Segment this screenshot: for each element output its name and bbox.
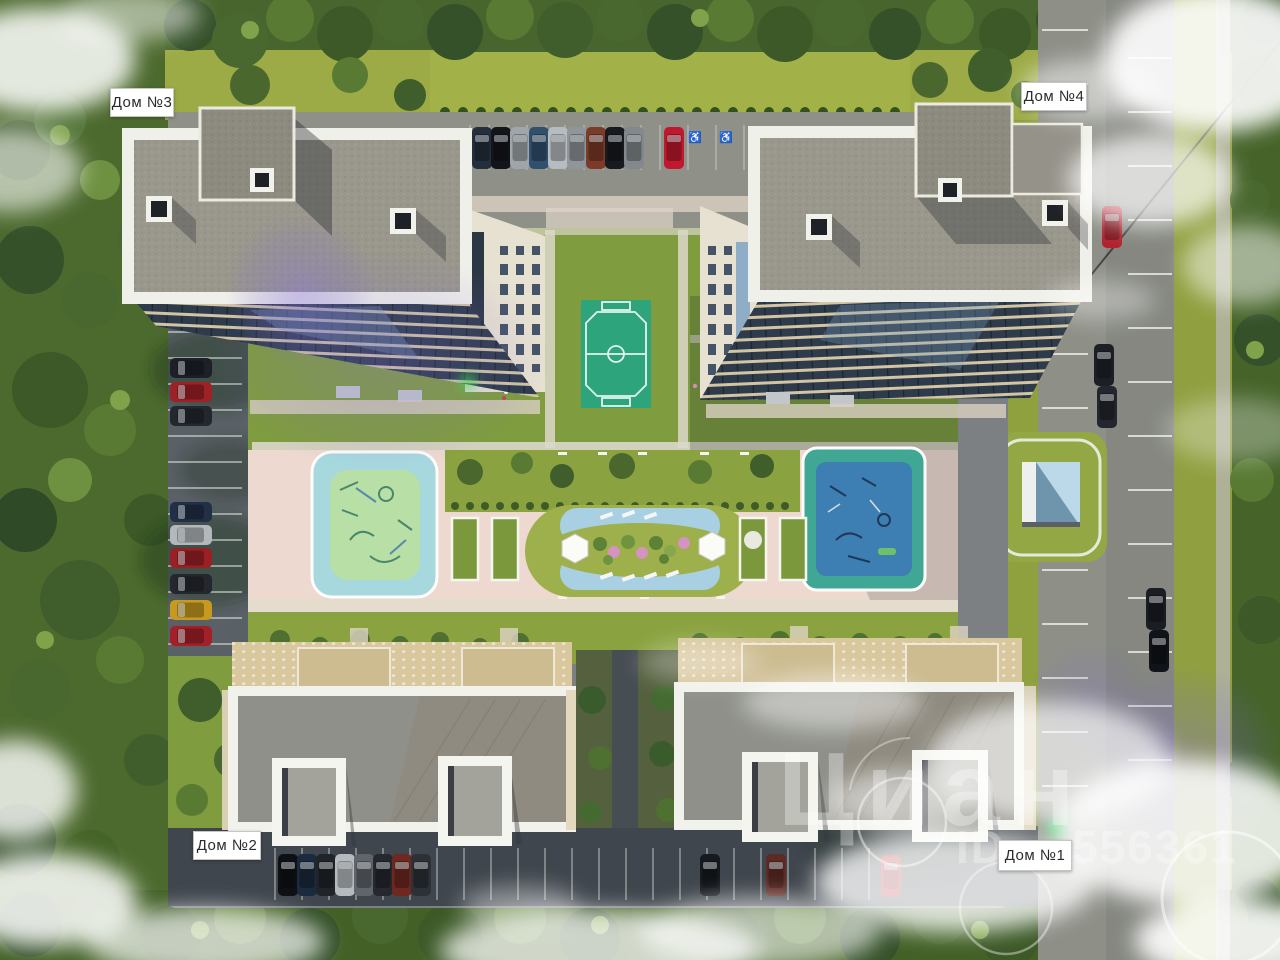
accessible-parking-icon: ♿ bbox=[719, 133, 733, 144]
playground-right bbox=[803, 448, 925, 590]
central-parterre bbox=[525, 505, 755, 597]
accessible-parking-icon: ♿ bbox=[688, 133, 702, 144]
playground-left bbox=[312, 452, 437, 597]
building-label-house4: Дом №4 bbox=[1021, 82, 1087, 111]
soccer-field bbox=[581, 300, 651, 408]
watermark-id-digits: 556361 bbox=[1072, 824, 1238, 870]
central-plaza bbox=[248, 448, 958, 615]
building-house2 bbox=[222, 642, 576, 846]
building-label-house2: Дом №2 bbox=[193, 831, 261, 860]
watermark-brand: Циан bbox=[778, 738, 1087, 842]
tower-house4 bbox=[700, 104, 1092, 418]
building-label-house1: Дом №1 bbox=[998, 840, 1072, 871]
building-label-house3: Дом №3 bbox=[110, 88, 174, 117]
masterplan-render: Циан ID 556361 ♿ ♿ Дом №3 Дом №4 Дом №2 … bbox=[0, 0, 1280, 960]
site-render-canvas bbox=[0, 0, 1280, 960]
